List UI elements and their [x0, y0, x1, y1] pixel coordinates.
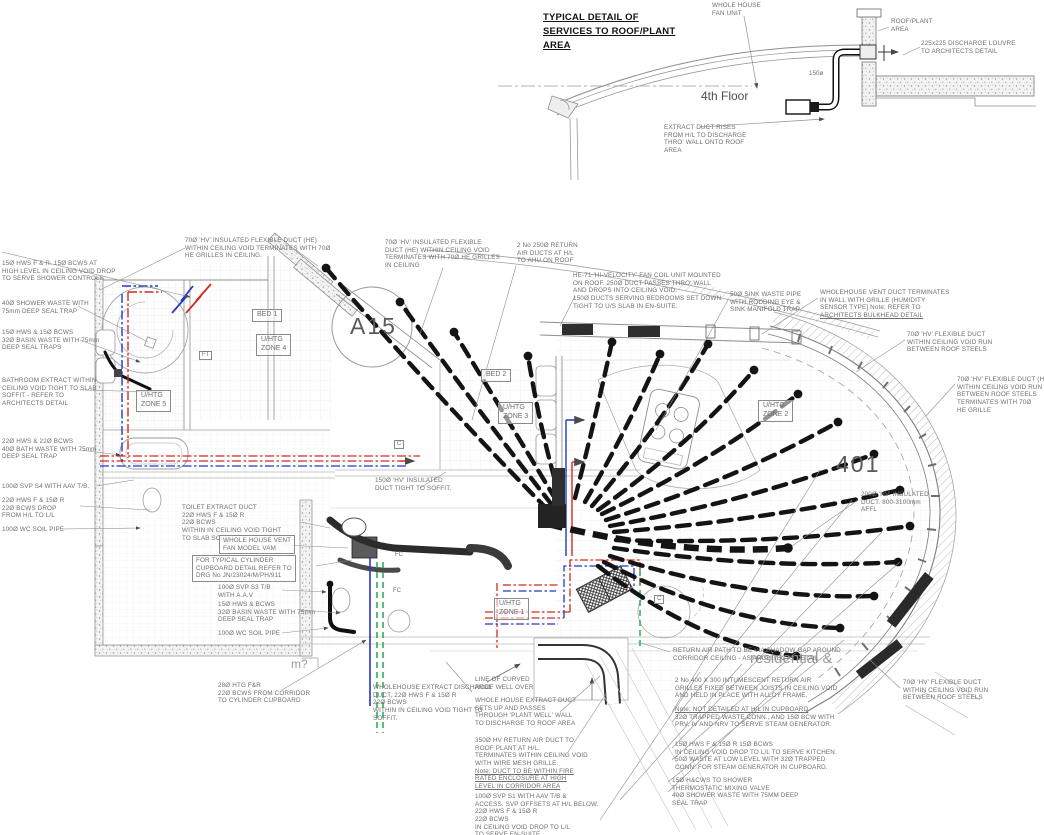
floor-plan — [2, 233, 980, 832]
plan-linework — [0, 0, 1044, 835]
detail-title: TYPICAL DETAIL OF SERVICES TO ROOF/PLANT… — [543, 11, 675, 52]
drawing-sheet: TYPICAL DETAIL OF SERVICES TO ROOF/PLANT… — [0, 0, 1044, 835]
